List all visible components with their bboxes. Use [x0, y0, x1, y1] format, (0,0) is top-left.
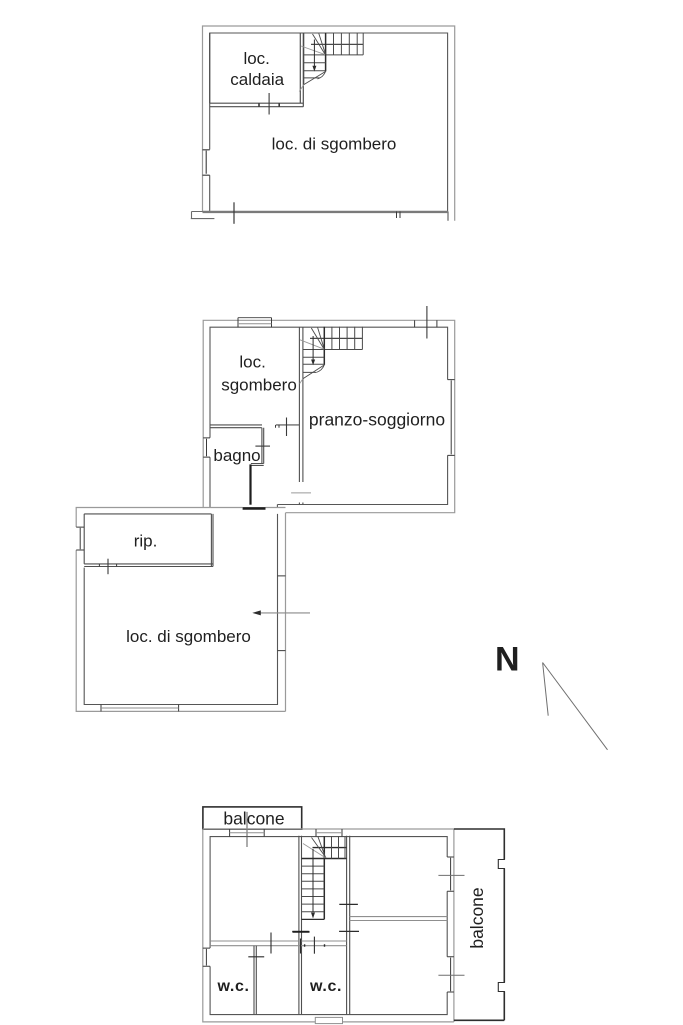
svg-text:loc. di sgombero: loc. di sgombero: [272, 135, 397, 154]
svg-text:balcone: balcone: [467, 887, 487, 948]
svg-text:w.c.: w.c.: [309, 978, 342, 995]
svg-text:pranzo-soggiorno: pranzo-soggiorno: [309, 410, 445, 430]
svg-text:loc. di sgombero: loc. di sgombero: [126, 627, 251, 646]
svg-text:caldaia: caldaia: [230, 70, 284, 89]
svg-text:balcone: balcone: [223, 809, 284, 829]
svg-text:bagno: bagno: [213, 446, 260, 465]
svg-text:w.c.: w.c.: [216, 978, 249, 995]
svg-text:loc.: loc.: [239, 353, 265, 372]
svg-text:loc.: loc.: [243, 49, 269, 68]
svg-text:sgombero: sgombero: [221, 376, 297, 395]
svg-text:rip.: rip.: [134, 532, 158, 551]
svg-text:N: N: [495, 641, 520, 679]
